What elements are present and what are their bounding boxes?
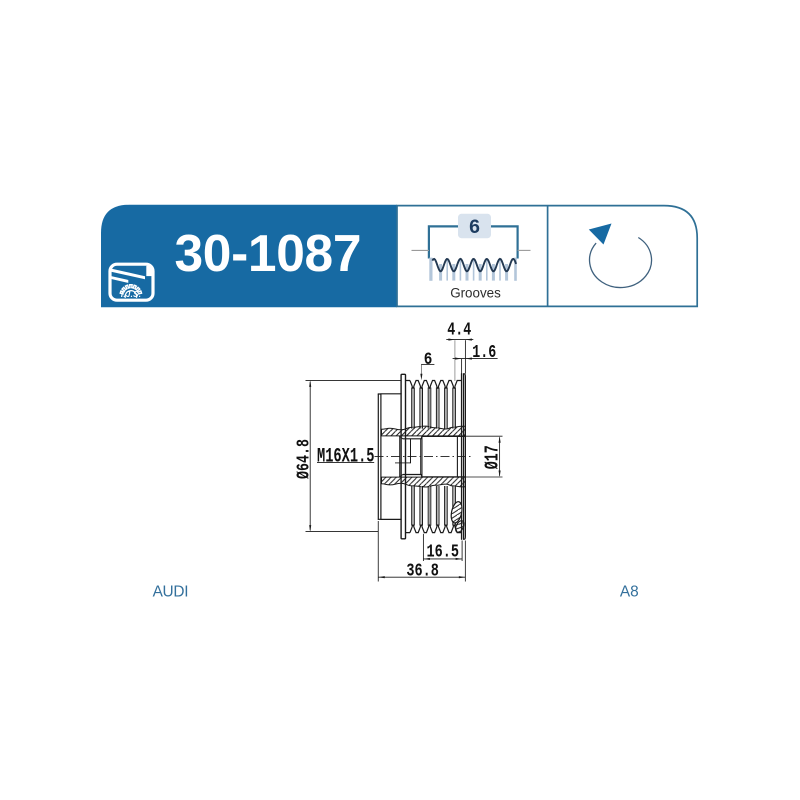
svg-text:I.J.S.: I.J.S. [121, 290, 141, 299]
svg-text:M16X1.5: M16X1.5 [317, 445, 375, 468]
svg-text:Ø64.8: Ø64.8 [294, 439, 315, 479]
svg-text:16.5: 16.5 [427, 541, 460, 562]
svg-text:30-1087: 30-1087 [175, 224, 362, 282]
svg-text:4.4: 4.4 [447, 319, 471, 340]
svg-text:6: 6 [469, 216, 480, 238]
svg-text:6: 6 [424, 350, 433, 370]
svg-text:A8: A8 [620, 584, 639, 601]
svg-text:36.8: 36.8 [406, 561, 439, 582]
svg-text:Grooves: Grooves [450, 286, 501, 301]
svg-text:1.6: 1.6 [472, 342, 496, 363]
svg-text:Ø17: Ø17 [481, 445, 503, 469]
svg-text:AUDI: AUDI [153, 584, 189, 601]
